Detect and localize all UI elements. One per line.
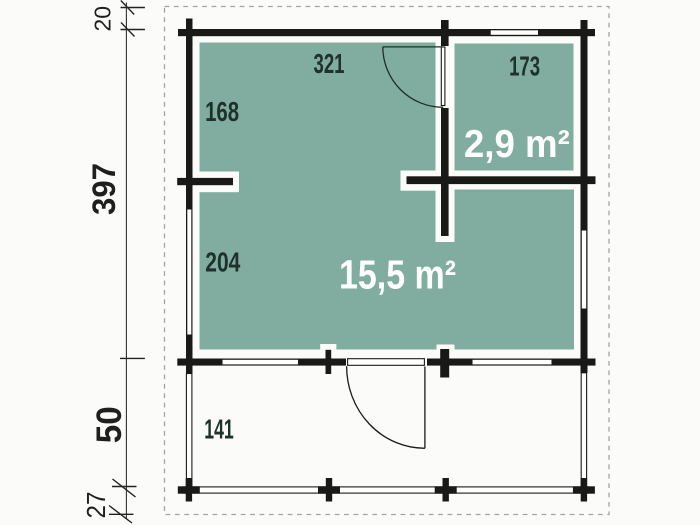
svg-text:15,5 m²: 15,5 m² (339, 252, 456, 298)
svg-text:50: 50 (90, 406, 129, 443)
svg-text:141: 141 (204, 413, 234, 444)
svg-text:173: 173 (509, 50, 540, 81)
svg-text:20: 20 (90, 6, 116, 32)
svg-text:321: 321 (314, 48, 345, 79)
svg-text:2,9 m²: 2,9 m² (464, 123, 570, 166)
svg-text:397: 397 (86, 163, 122, 215)
svg-text:204: 204 (205, 247, 241, 278)
svg-text:168: 168 (205, 96, 239, 127)
svg-text:27: 27 (83, 492, 111, 519)
